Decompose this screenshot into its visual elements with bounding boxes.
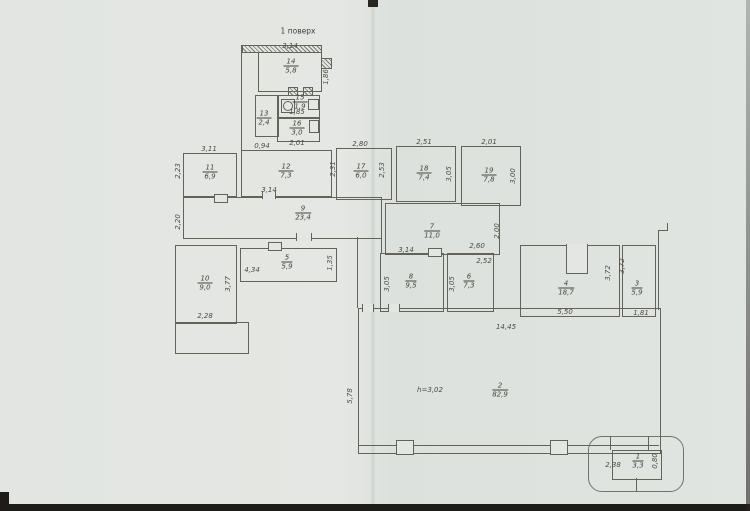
wall-vertical-corridor-end [381, 197, 382, 253]
porch-stub-right [648, 436, 649, 450]
floor-title: 1 поверх [281, 27, 316, 36]
room-label-10: 109,0 [198, 275, 213, 292]
scan-edge-top-notch [368, 0, 378, 7]
dim-label-2-top: 14,45 [496, 323, 516, 331]
room-label-18: 187,4 [417, 165, 432, 182]
room-label-13: 132,4 [257, 110, 272, 127]
dim-label-2-left: 5,78 [346, 388, 354, 404]
dim-label-13-left: 0,94 [254, 142, 270, 150]
pilaster-1 [396, 440, 414, 455]
stair-block-outline [175, 322, 249, 354]
dim-label-7-right: 2,00 [493, 223, 501, 239]
dim-label-12-right: 2,31 [329, 161, 337, 177]
vent-shaft-icon-3 [321, 58, 332, 69]
dim-label-15-width: 1,85 [289, 108, 305, 116]
room-label-19: 197,8 [482, 167, 497, 184]
dim-label-2-height-note: h=3,02 [417, 386, 443, 394]
dim-label-18-right: 3,05 [445, 166, 453, 182]
pilaster-2 [550, 440, 568, 455]
room-4-recess [566, 244, 588, 274]
toilet-icon [308, 99, 319, 110]
room-label-2: 282,9 [492, 382, 508, 399]
dim-label-12-bottom: 3,14 [261, 186, 277, 194]
dim-label-9-left: 2,20 [174, 214, 182, 230]
dim-label-4-bottom: 5,50 [557, 308, 573, 316]
room-label-17: 176,0 [354, 163, 369, 180]
dim-label-18-top: 2,51 [416, 138, 432, 146]
dim-label-3-left-b: 3,72 [618, 258, 626, 274]
wall-right-upper [658, 230, 659, 310]
dim-label-14-right: 1,86 [322, 69, 330, 85]
dim-label-17-top: 2,80 [352, 140, 368, 148]
dim-label-3-left-a: 3,72 [604, 265, 612, 281]
door-opening-3 [268, 242, 282, 251]
dim-label-6-left: 3,05 [448, 276, 456, 292]
dim-label-14-top: 3,14 [282, 42, 298, 50]
dim-label-5-right: 1,35 [326, 255, 334, 271]
room-label-4: 418,7 [558, 280, 574, 297]
wall-vertical-mid [357, 237, 358, 308]
dim-label-8-top: 3,14 [398, 246, 414, 254]
room-label-9: 923,4 [295, 205, 311, 222]
door-opening-6 [388, 304, 400, 312]
scan-edge-right [746, 0, 750, 511]
door-opening-2 [296, 233, 312, 241]
dim-label-11-top: 3,11 [201, 145, 217, 153]
dim-label-19-right: 3,00 [509, 168, 517, 184]
porch-stub-left [610, 436, 611, 450]
room-label-14: 145,8 [284, 58, 299, 75]
room-label-6: 67,3 [463, 273, 474, 290]
door-opening-4 [428, 248, 442, 257]
dim-label-10-right: 3,77 [224, 276, 232, 292]
dim-label-7-a: 2,60 [469, 242, 485, 250]
dim-label-11-left: 2,23 [174, 163, 182, 179]
dim-label-7-b: 2,52 [476, 257, 492, 265]
dim-label-19-top: 2,01 [481, 138, 497, 146]
door-opening-5 [362, 304, 374, 312]
scan-edge-bottom-left [0, 492, 9, 511]
dim-label-16-width: 2,01 [289, 139, 305, 147]
room-label-12: 127,3 [279, 163, 294, 180]
room-label-3: 35,9 [631, 280, 642, 297]
floor-plan-scan: 1 поверх 145,8 151,9 132,4 [0, 0, 750, 511]
room-outline-9-corridor [183, 197, 382, 239]
door-opening-7 [214, 194, 228, 203]
sink-icon [309, 120, 319, 133]
dim-label-10-bottom: 2,28 [197, 312, 213, 320]
dim-label-5-width: 4,34 [244, 266, 260, 274]
scan-edge-bottom [0, 504, 750, 511]
room-label-16: 163,0 [290, 120, 305, 137]
room-label-7: 711,0 [424, 223, 440, 240]
room-label-5: 55,9 [281, 254, 292, 271]
dim-label-1-right: 0,80 [651, 453, 659, 469]
porch-step-line [636, 478, 637, 491]
dim-label-17-right: 2,53 [378, 162, 386, 178]
wall-right-jog-v [667, 223, 668, 231]
dim-label-3-bottom: 1,81 [633, 309, 649, 317]
room-label-8: 89,5 [405, 273, 416, 290]
room-label-1: 13,3 [632, 453, 643, 470]
wall-left-upper [241, 45, 242, 150]
room-label-11: 116,9 [203, 164, 218, 181]
dim-label-8-left: 3,05 [383, 276, 391, 292]
dim-label-1-left: 2,38 [605, 461, 621, 469]
